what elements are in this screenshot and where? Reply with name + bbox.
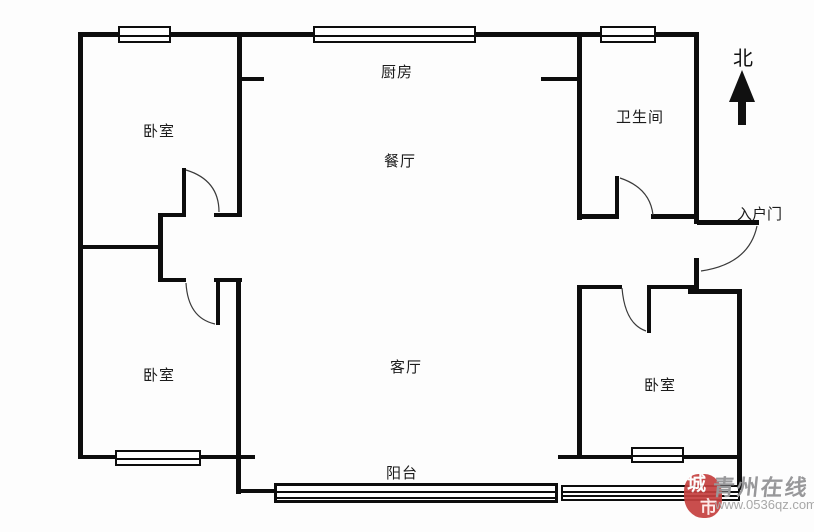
- door-arc-bedroom-top-left: [186, 170, 219, 212]
- door-arc-bedroom-bottom-left: [186, 283, 215, 324]
- room-label-bedroom-bottom-left: 卧室: [143, 364, 175, 385]
- north-label: 北: [733, 42, 753, 71]
- site-logo-text-top: 城: [687, 475, 706, 495]
- room-label-dining: 餐厅: [384, 150, 416, 171]
- watermark-url: www.0536qz.com: [715, 497, 814, 512]
- door-arc-bedroom-bottom-right: [622, 288, 646, 331]
- door-arc-entrance: [701, 226, 757, 271]
- floor-plan: 厨房 卫生间 卧室 餐厅 客厅 卧室 卧室 阳台 入户门 北 城 市 青州在线 …: [0, 0, 814, 532]
- room-label-balcony: 阳台: [386, 462, 418, 483]
- door-arc-bathroom: [620, 178, 653, 215]
- watermark: 城 市 青州在线 www.0536qz.com: [682, 468, 814, 528]
- room-label-kitchen: 厨房: [381, 61, 413, 82]
- room-label-bedroom-top-left: 卧室: [143, 120, 175, 141]
- north-arrow-icon: [729, 70, 755, 125]
- room-label-bathroom: 卫生间: [616, 106, 664, 127]
- room-label-bedroom-bottom-right: 卧室: [644, 374, 676, 395]
- entrance-door-label: 入户门: [737, 203, 782, 224]
- room-label-living: 客厅: [390, 356, 422, 377]
